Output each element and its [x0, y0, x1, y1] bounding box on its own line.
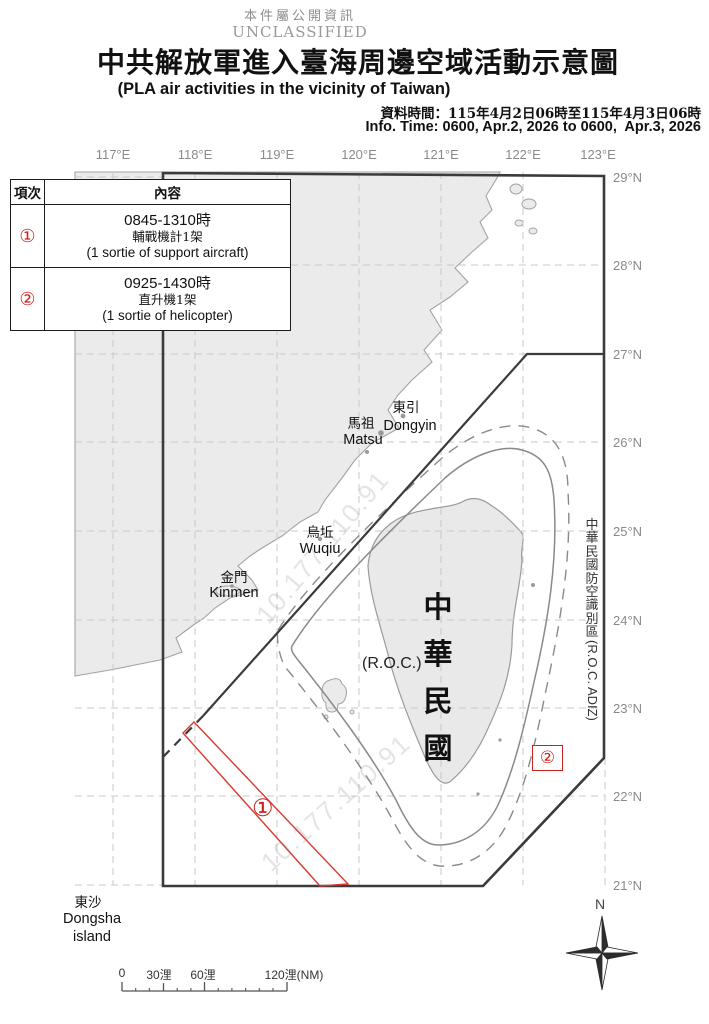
row2-desc-zh: 直升機1架	[45, 292, 290, 308]
lat-label-28n: 28°N	[613, 258, 642, 273]
row1-content: 0845-1310時 輔戰機計1架 (1 sortie of support a…	[45, 205, 291, 268]
activity-table-header: 項次 內容	[11, 180, 291, 205]
scale-label-120: 120浬(NM)	[265, 966, 324, 983]
lon-label-120e: 120°E	[341, 147, 377, 162]
activity-marker-2-glyph: ②	[540, 748, 555, 768]
row1-desc-en: (1 sortie of support aircraft)	[45, 245, 290, 261]
lon-label-117e: 117°E	[96, 147, 131, 162]
lon-label-118e: 118°E	[178, 147, 213, 162]
lat-label-25n: 25°N	[613, 524, 642, 539]
adiz-label-en: (R.O.C. ADIZ)	[585, 640, 600, 721]
row1-desc-zh: 輔戰機計1架	[45, 229, 290, 245]
lon-label-121e: 121°E	[423, 147, 459, 162]
table-row: ② 0925-1430時 直升機1架 (1 sortie of helicopt…	[11, 268, 291, 331]
row1-time: 0845-1310時	[45, 212, 290, 229]
activity-marker-2: ②	[532, 745, 563, 771]
page-title-en: (PLA air activities in the vicinity of T…	[118, 80, 451, 99]
scale-label-0: 0	[119, 966, 126, 980]
lat-label-23n: 23°N	[613, 701, 642, 716]
activity-table: 項次 內容 ① 0845-1310時 輔戰機計1架 (1 sortie of s…	[10, 179, 291, 331]
row2-time: 0925-1430時	[45, 275, 290, 292]
adiz-label-zh: 中華民國防空識別區	[584, 519, 600, 640]
taiwan-label-zh: 中華民國	[422, 584, 454, 772]
row1-marker: ①	[11, 205, 45, 268]
table-row: ① 0845-1310時 輔戰機計1架 (1 sortie of support…	[11, 205, 291, 268]
pla-activity-map-page: 本件屬公開資訊 UNCLASSIFIED 中共解放軍進入臺海周邊空域活動示意圖 …	[0, 0, 709, 1024]
taiwan-label-en: (R.O.C.)	[362, 655, 422, 673]
place-dongsha-zh: 東沙	[75, 891, 102, 911]
place-kinmen-zh: 金門	[221, 566, 248, 586]
place-wuqiu-en: Wuqiu	[300, 541, 341, 557]
lat-label-21n: 21°N	[613, 878, 642, 893]
classification-zh: 本件屬公開資訊	[244, 5, 356, 24]
scale-label-60: 60浬	[190, 966, 215, 983]
lon-label-119e: 119°E	[260, 147, 295, 162]
row2-desc-en: (1 sortie of helicopter)	[45, 308, 290, 324]
compass-rose	[566, 916, 638, 990]
page-title-zh: 中共解放軍進入臺海周邊空域活動示意圖	[97, 41, 619, 81]
lat-label-24n: 24°N	[613, 613, 642, 628]
place-matsu-en: Matsu	[343, 432, 383, 448]
place-dongsha-island: island	[73, 929, 111, 945]
compass-north-label: N	[595, 896, 605, 912]
activity-marker-1: ①	[252, 797, 274, 821]
scale-label-30: 30浬	[146, 966, 171, 983]
classification-en: UNCLASSIFIED	[232, 23, 368, 41]
lat-label-26n: 26°N	[613, 435, 642, 450]
lon-label-123e: 123°E	[580, 147, 616, 162]
col-header-item: 項次	[11, 180, 45, 205]
place-dongsha-en: Dongsha	[63, 911, 121, 927]
place-dongyin-zh: 東引	[393, 396, 420, 416]
place-kinmen-en: Kinmen	[209, 585, 258, 601]
lat-label-27n: 27°N	[613, 347, 642, 362]
adiz-inner-line-dashed	[163, 716, 203, 757]
lon-label-122e: 122°E	[505, 147, 541, 162]
place-dongyin-en: Dongyin	[383, 418, 436, 434]
place-matsu-zh: 馬祖	[348, 412, 375, 432]
row2-marker: ②	[11, 268, 45, 331]
place-wuqiu-zh: 烏坵	[307, 521, 334, 541]
info-time-en: Info. Time: 0600, Apr.2, 2026 to 0600, A…	[365, 119, 701, 135]
scale-bar	[122, 982, 287, 991]
row2-content: 0925-1430時 直升機1架 (1 sortie of helicopter…	[45, 268, 291, 331]
lat-label-29n: 29°N	[613, 170, 642, 185]
lat-label-22n: 22°N	[613, 789, 642, 804]
col-header-content: 內容	[45, 180, 291, 205]
